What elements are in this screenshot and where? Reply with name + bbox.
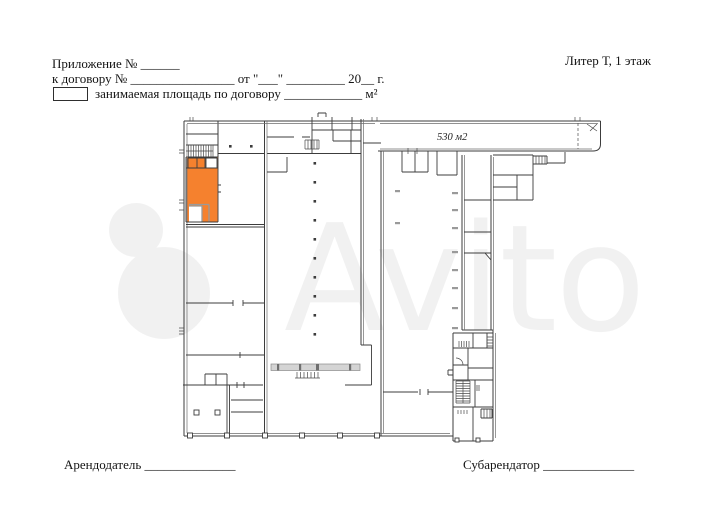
legend-label: занимаемая площадь по договору _________… (95, 87, 377, 101)
building-floor-label: Литер Т, 1 этаж (565, 54, 651, 68)
leased-area-cutout-bottom (189, 206, 202, 222)
watermark-logo-dot-large (118, 247, 210, 339)
area-label: 530 м2 (437, 132, 468, 143)
conveyor-hatch (295, 372, 320, 378)
contract-number-line: к договору № ________________ от "___" _… (52, 72, 384, 86)
conveyor-band (271, 364, 360, 371)
subtenant-signature-line: Субарендатор ______________ (463, 458, 634, 472)
legend-swatch-box (53, 87, 88, 101)
staircase-top-left (186, 145, 213, 157)
appendix-number-line: Приложение № ______ (52, 57, 180, 71)
column-squares (188, 410, 481, 442)
stair-ladder-530 (536, 124, 597, 164)
staircase-cluster (456, 381, 470, 403)
leased-area-highlight (187, 158, 218, 223)
landlord-signature-line: Арендодатель ______________ (64, 458, 236, 472)
document-page: Avito (0, 0, 720, 509)
leased-area-cutout-top (206, 158, 218, 168)
legend-row: занимаемая площадь по договору _________… (53, 87, 377, 101)
watermark-text: Avito (284, 193, 644, 365)
